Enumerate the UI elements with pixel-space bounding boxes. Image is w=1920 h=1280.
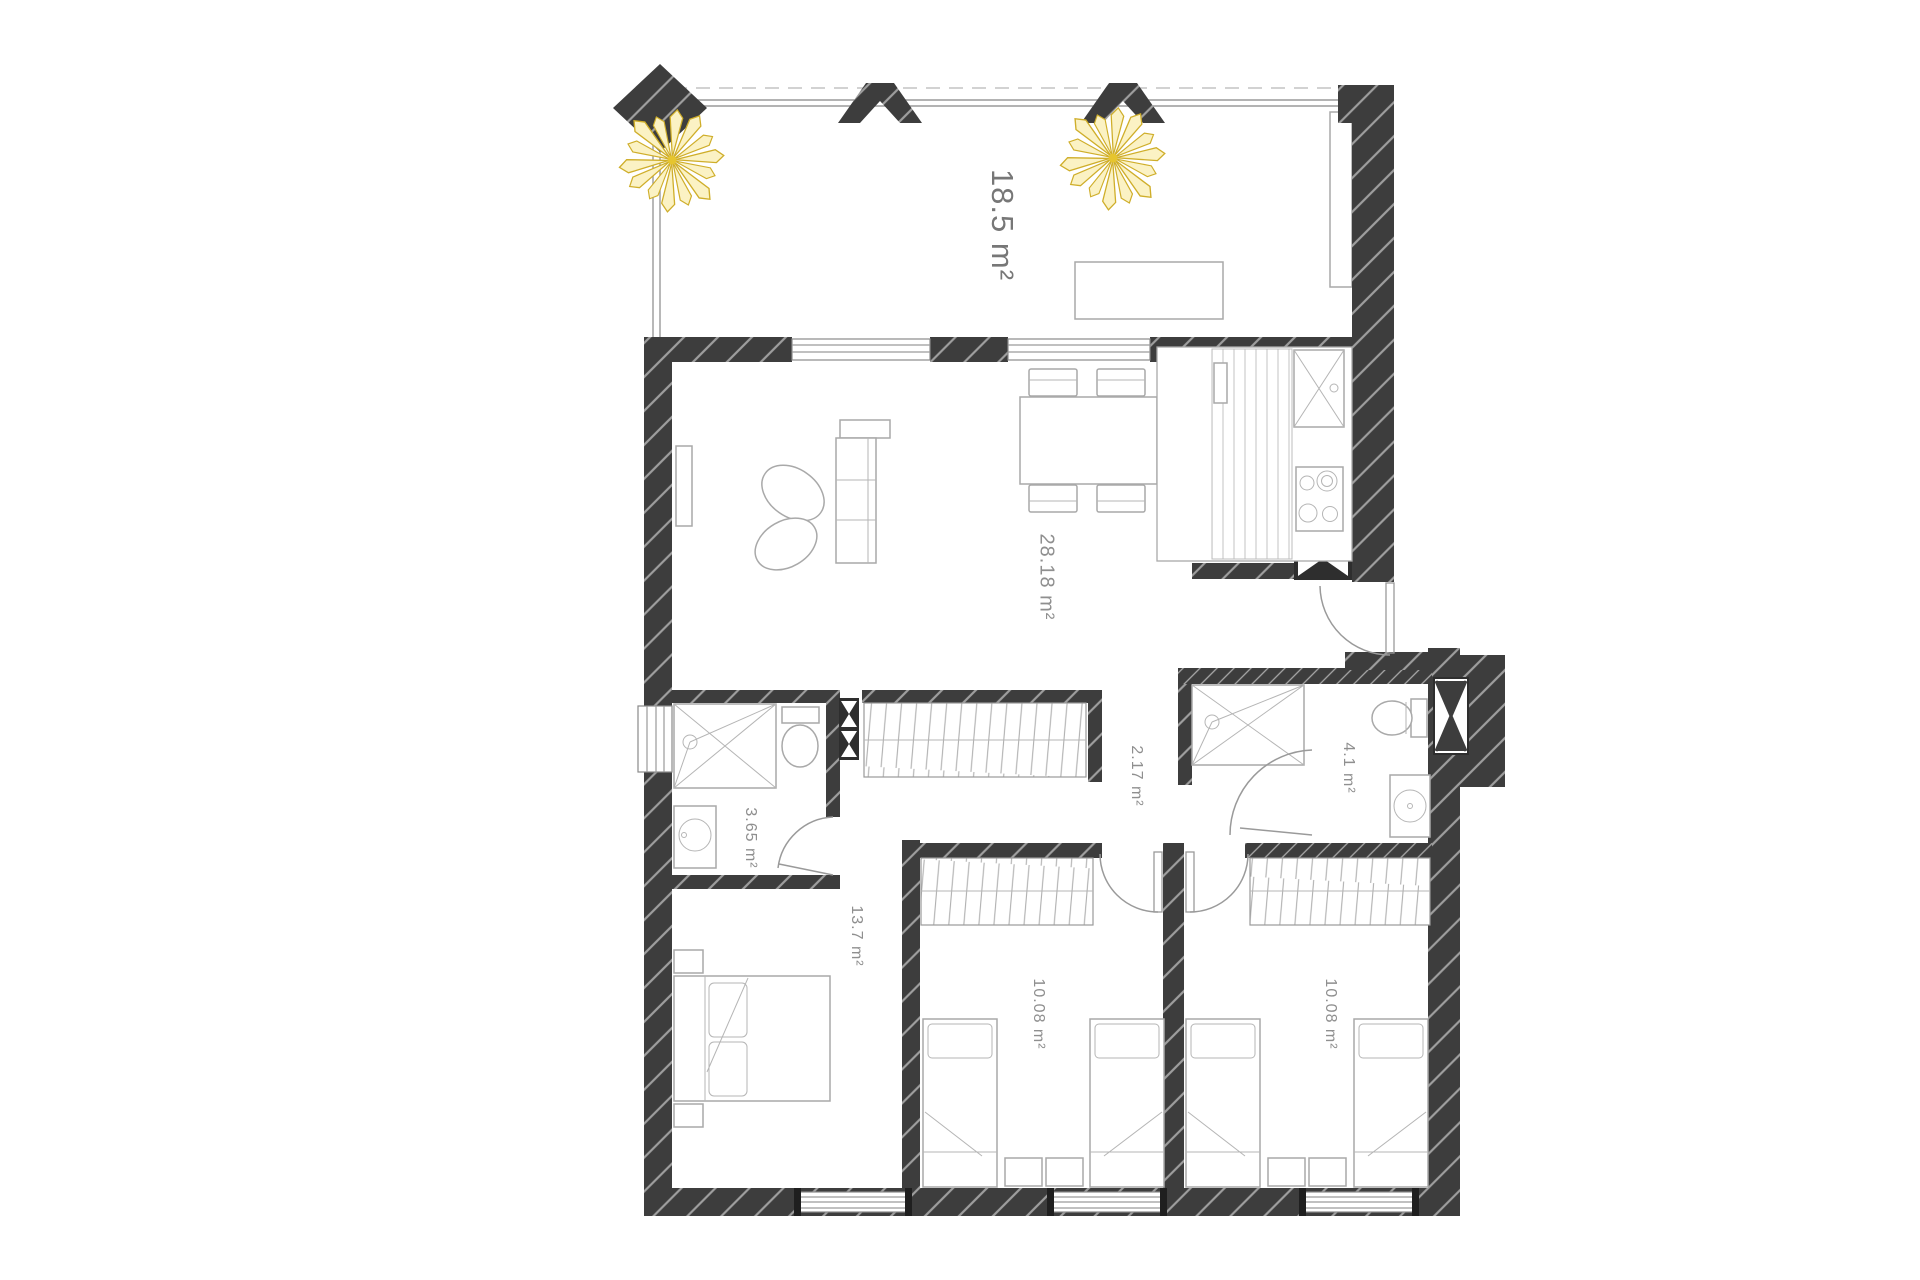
floor-plan-drawing: 18.5 m²: [0, 0, 1920, 1280]
dining-table: [1020, 397, 1157, 484]
chair: [1029, 485, 1077, 512]
wall-segment: [644, 337, 792, 362]
wall-segment: [1163, 843, 1184, 1188]
palm-plant-icon: [619, 109, 725, 212]
wall-segment: [1088, 690, 1102, 782]
washbasin: [674, 806, 716, 868]
toilet: [1372, 699, 1427, 737]
shower: [1192, 685, 1304, 765]
wall-segment: [644, 337, 672, 1216]
bedroom-right-area-label: 10.08 m²: [1322, 978, 1339, 1049]
door-swing: [1320, 583, 1394, 655]
single-bed: [1186, 1019, 1260, 1187]
floor-plan-page: 18.5 m²: [0, 0, 1920, 1280]
wardrobe: [1250, 858, 1430, 925]
bedroom-left: 13.7 m²: [674, 905, 865, 1127]
living-room: 28.18 m²: [676, 369, 1157, 620]
shaft-window-x: [1434, 678, 1468, 754]
hallway-area-label: 2.17 m²: [1128, 745, 1145, 806]
wall-segment: [1178, 668, 1432, 684]
bathroom-left: 3.65 m²: [674, 704, 833, 875]
single-bed: [1090, 1019, 1164, 1187]
bedroom-middle-area-label: 10.08 m²: [1030, 978, 1047, 1049]
hallway: 2.17 m²: [864, 703, 1145, 807]
wall-segment: [826, 690, 840, 817]
window: [794, 1188, 912, 1216]
window: [1299, 1188, 1419, 1216]
double-bed: [674, 976, 830, 1101]
nightstand: [1005, 1158, 1042, 1186]
terrace-table: [1075, 262, 1223, 319]
dining-set: [1020, 369, 1157, 512]
single-bed: [1354, 1019, 1428, 1187]
door-swing: [1186, 852, 1248, 912]
chair: [1097, 485, 1145, 512]
wall-segment: [1178, 683, 1192, 785]
kitchen-sink: [1294, 350, 1344, 427]
window: [638, 706, 672, 772]
corridor-wardrobe: [864, 703, 1086, 777]
sofa: [836, 438, 876, 563]
bathroom-left-area-label: 3.65 m²: [742, 807, 759, 868]
nightstand: [1046, 1158, 1083, 1186]
bedroom-left-area-label: 13.7 m²: [848, 905, 865, 966]
window: [1008, 339, 1150, 360]
wall-segment: [1192, 563, 1294, 579]
single-bed: [923, 1019, 997, 1187]
terrace-sideboard: [1330, 112, 1352, 287]
stove: [1296, 467, 1343, 531]
terrace-pillar: [838, 83, 922, 123]
terrace-area-label: 18.5 m²: [985, 169, 1020, 281]
wall-segment: [1245, 843, 1432, 858]
washbasin: [1390, 775, 1430, 837]
wall-segment: [920, 843, 1102, 858]
wall-segment: [862, 690, 1102, 703]
tv-sideboard: [676, 446, 692, 526]
kitchen: [1157, 347, 1352, 561]
wall-segment: [902, 840, 920, 1188]
bedroom-middle: 10.08 m²: [921, 852, 1164, 1187]
bathroom-right: 4.1 m²: [1192, 685, 1430, 837]
shower: [674, 704, 776, 788]
chair: [1097, 369, 1145, 396]
terrace: 18.5 m²: [613, 64, 1352, 344]
chair: [1029, 369, 1077, 396]
wall-segment: [1352, 85, 1394, 582]
nightstand: [674, 1104, 703, 1127]
bathroom-right-area-label: 4.1 m²: [1340, 742, 1357, 793]
toilet: [782, 707, 819, 767]
wardrobe: [921, 858, 1093, 925]
window: [792, 339, 930, 360]
nightstand: [1268, 1158, 1305, 1186]
kitchen-appliance: [1214, 363, 1227, 403]
door-swing: [778, 817, 833, 875]
wall-segment: [644, 690, 840, 703]
wall-segment: [930, 337, 1008, 362]
living-room-area-label: 28.18 m²: [1036, 534, 1058, 621]
window: [1047, 1188, 1167, 1216]
sofa-armrest: [840, 420, 890, 438]
door-swing: [1100, 852, 1162, 912]
wall-end-column: [839, 698, 859, 760]
terrace-corner-pillar: [613, 64, 707, 152]
wall-segment: [1338, 85, 1394, 123]
wall-segment: [644, 875, 840, 889]
nightstand: [1309, 1158, 1346, 1186]
bedroom-right: 10.08 m²: [1186, 852, 1430, 1187]
nightstand: [674, 950, 703, 973]
